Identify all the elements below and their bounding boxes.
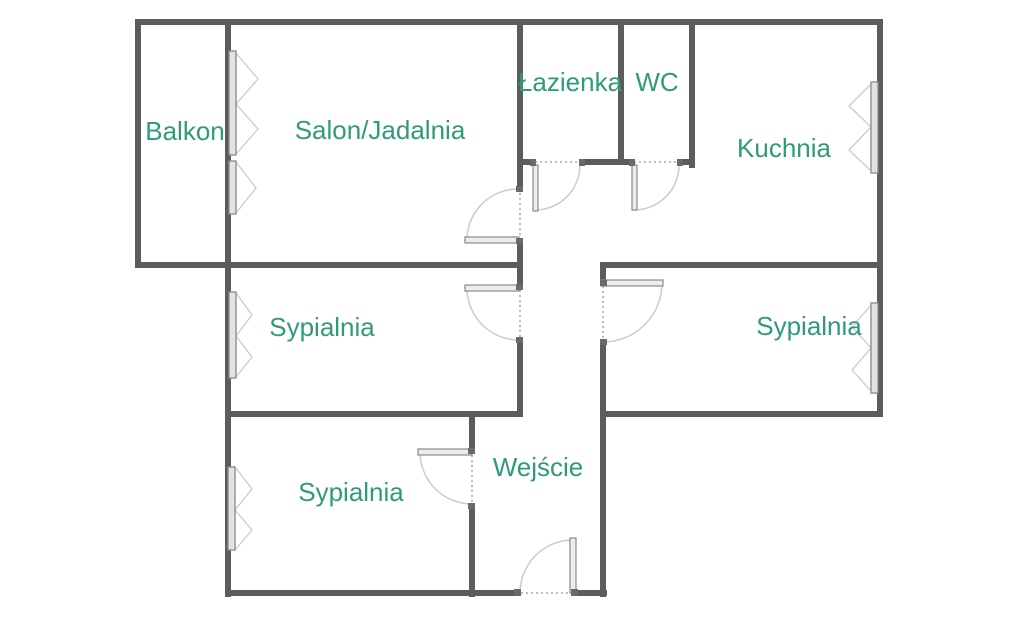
window-opening-triangle <box>236 336 252 377</box>
door-leaf-wc <box>632 165 637 210</box>
door-swing-arc-bathroom <box>535 165 580 210</box>
wall-bath-bottom-b <box>584 159 632 165</box>
window-bedroom-bottom <box>228 467 235 550</box>
window-bedroom-left <box>229 292 236 378</box>
room-label-sypialnia-middle-left: Sypialnia <box>269 312 375 342</box>
door-openings-group <box>472 162 679 593</box>
door-leaf-bedroom-bottom <box>418 449 472 455</box>
window-opening-triangle <box>236 104 258 154</box>
wall-outer-bottom-b <box>575 590 607 596</box>
hinge-post <box>516 284 523 290</box>
floorplan-canvas: Balkon Salon/Jadalnia Łazienka WC Kuchni… <box>0 0 1014 621</box>
door-leaf-bathroom <box>533 165 538 211</box>
door-swing-arc-wc <box>634 165 679 210</box>
door-arcs-group <box>420 165 679 593</box>
window-balcony-door <box>229 161 236 214</box>
door-swing-arc-entrance <box>520 540 573 593</box>
wall-right-bedroom-bottom <box>600 411 883 417</box>
hinge-post <box>516 238 523 244</box>
hinge-post <box>468 503 475 509</box>
window-opening-triangle <box>235 510 252 550</box>
door-leaf-entrance <box>570 538 576 593</box>
hinge-post <box>579 159 585 166</box>
window-opening-triangle <box>235 467 252 510</box>
wall-entry-left-upper <box>469 411 475 450</box>
wall-corridor-right-lower <box>600 343 606 597</box>
door-leaves-group <box>418 165 663 593</box>
hinge-post <box>516 186 523 192</box>
wall-kitchen-left <box>689 19 695 168</box>
room-label-sypialnia-bottom: Sypialnia <box>298 477 404 507</box>
door-swing-arc-bedroom-left <box>467 288 519 340</box>
door-leaf-bedroom-right <box>601 280 663 286</box>
window-kitchen <box>871 82 878 173</box>
wall-outer-top <box>135 19 883 25</box>
wall-center-spine-lower <box>517 341 523 417</box>
door-swing-arc-salon <box>467 189 518 240</box>
room-label-sypialnia-middle-right: Sypialnia <box>756 311 862 341</box>
hinge-post <box>600 280 607 286</box>
wall-lower-left <box>225 411 523 417</box>
room-label-wejscie: Wejście <box>493 452 584 482</box>
room-label-wc: WC <box>635 67 678 97</box>
door-swing-arc-bedroom-right <box>603 283 662 342</box>
hinge-post <box>468 448 475 454</box>
window-opening-triangle <box>852 348 871 391</box>
hinge-post <box>516 337 523 343</box>
window-bedroom-right <box>871 303 878 393</box>
door-leaf-salon <box>465 237 519 243</box>
window-opening-triangle <box>236 293 252 336</box>
door-leaf-bedroom-left <box>465 285 519 291</box>
wall-entry-left-lower <box>469 507 475 597</box>
hinge-post <box>629 159 635 166</box>
hinge-post <box>514 589 521 596</box>
floorplan-page: Balkon Salon/Jadalnia Łazienka WC Kuchni… <box>0 0 1014 621</box>
wall-kitchen-bottom <box>600 262 883 268</box>
hinge-post <box>600 339 607 345</box>
window-opening-triangle <box>236 53 258 104</box>
window-opening-triangle <box>236 162 256 213</box>
window-balcony-upper <box>229 51 236 155</box>
room-label-lazienka: Łazienka <box>518 67 623 97</box>
wall-outer-left-balcony <box>135 19 141 268</box>
window-opening-triangle <box>849 84 871 127</box>
hinge-posts-group <box>468 159 683 596</box>
wall-outer-bottom-a <box>225 590 519 596</box>
room-label-balkon: Balkon <box>145 116 225 146</box>
window-opening-triangle <box>849 127 871 171</box>
hinge-post <box>677 159 683 166</box>
hinge-post <box>571 589 578 596</box>
wall-mid-left <box>135 262 523 268</box>
door-swing-arc-bedroom-bottom <box>420 452 472 504</box>
room-label-salon-jadalnia: Salon/Jadalnia <box>295 115 466 145</box>
hinge-post <box>530 159 536 166</box>
room-label-kuchnia: Kuchnia <box>737 133 831 163</box>
